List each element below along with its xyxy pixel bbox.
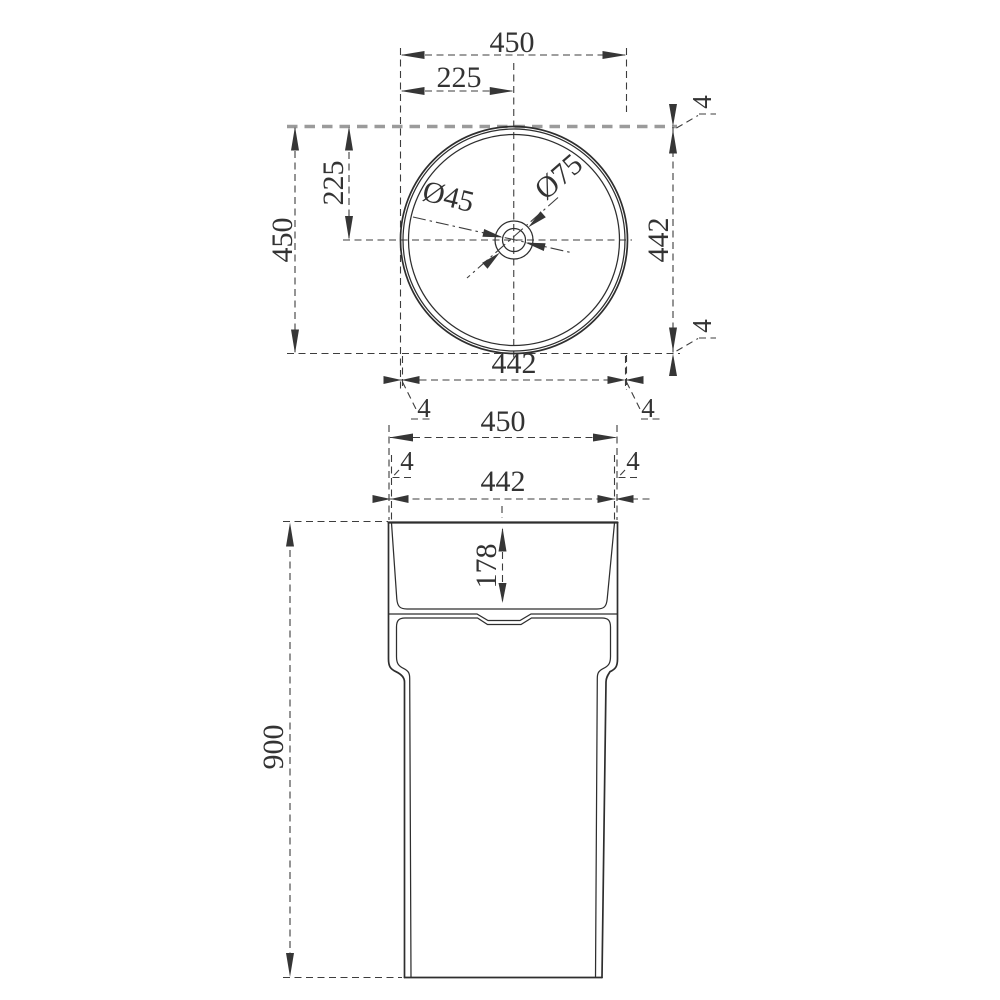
dim-top-inner-height-label: 442	[642, 218, 675, 263]
drawing-canvas: 450 225 225 450 442 4 4 442 4 4 Ø45 Ø75	[0, 0, 1000, 1000]
dim-front-outer-width-label: 450	[481, 405, 526, 438]
dim-total-height-label: 900	[257, 725, 290, 770]
dim-front-wall-left-label: 4	[400, 446, 414, 476]
dim-front-inner-width-label: 442	[481, 465, 526, 498]
dim-top-outer-width-label: 450	[490, 26, 535, 59]
front-view: 450 4 4 442 178 900	[257, 405, 650, 978]
bowl-shell-bottom	[389, 614, 617, 621]
dim-drain-outer-label: Ø75	[528, 147, 589, 206]
dim-basin-depth-label: 178	[470, 544, 503, 589]
pedestal-cavity-top	[405, 618, 602, 625]
right-outer-wall	[602, 523, 618, 978]
dim-wall-bottom-label: 4	[687, 319, 717, 333]
dim-top-half-height-label: 225	[317, 161, 350, 206]
dim-wall-top-label: 4	[687, 95, 717, 109]
front-view-extension-lines	[283, 425, 617, 978]
dim-drain-inner-label: Ø45	[419, 175, 477, 220]
dim-top-inner-width-label: 442	[492, 347, 537, 380]
dim-top-half-width-label: 225	[437, 61, 482, 94]
dim-wall-bottom-right-label: 4	[641, 393, 655, 423]
top-view-dimension-lines	[291, 51, 677, 384]
dim-front-wall-right-label: 4	[626, 446, 640, 476]
technical-drawing: 450 225 225 450 442 4 4 442 4 4 Ø45 Ø75	[0, 0, 1000, 1000]
top-view: 450 225 225 450 442 4 4 442 4 4 Ø45 Ø75	[266, 26, 717, 423]
dim-wall-bottom-left-label: 4	[417, 393, 431, 423]
dim-top-outer-height-label: 450	[266, 218, 299, 263]
